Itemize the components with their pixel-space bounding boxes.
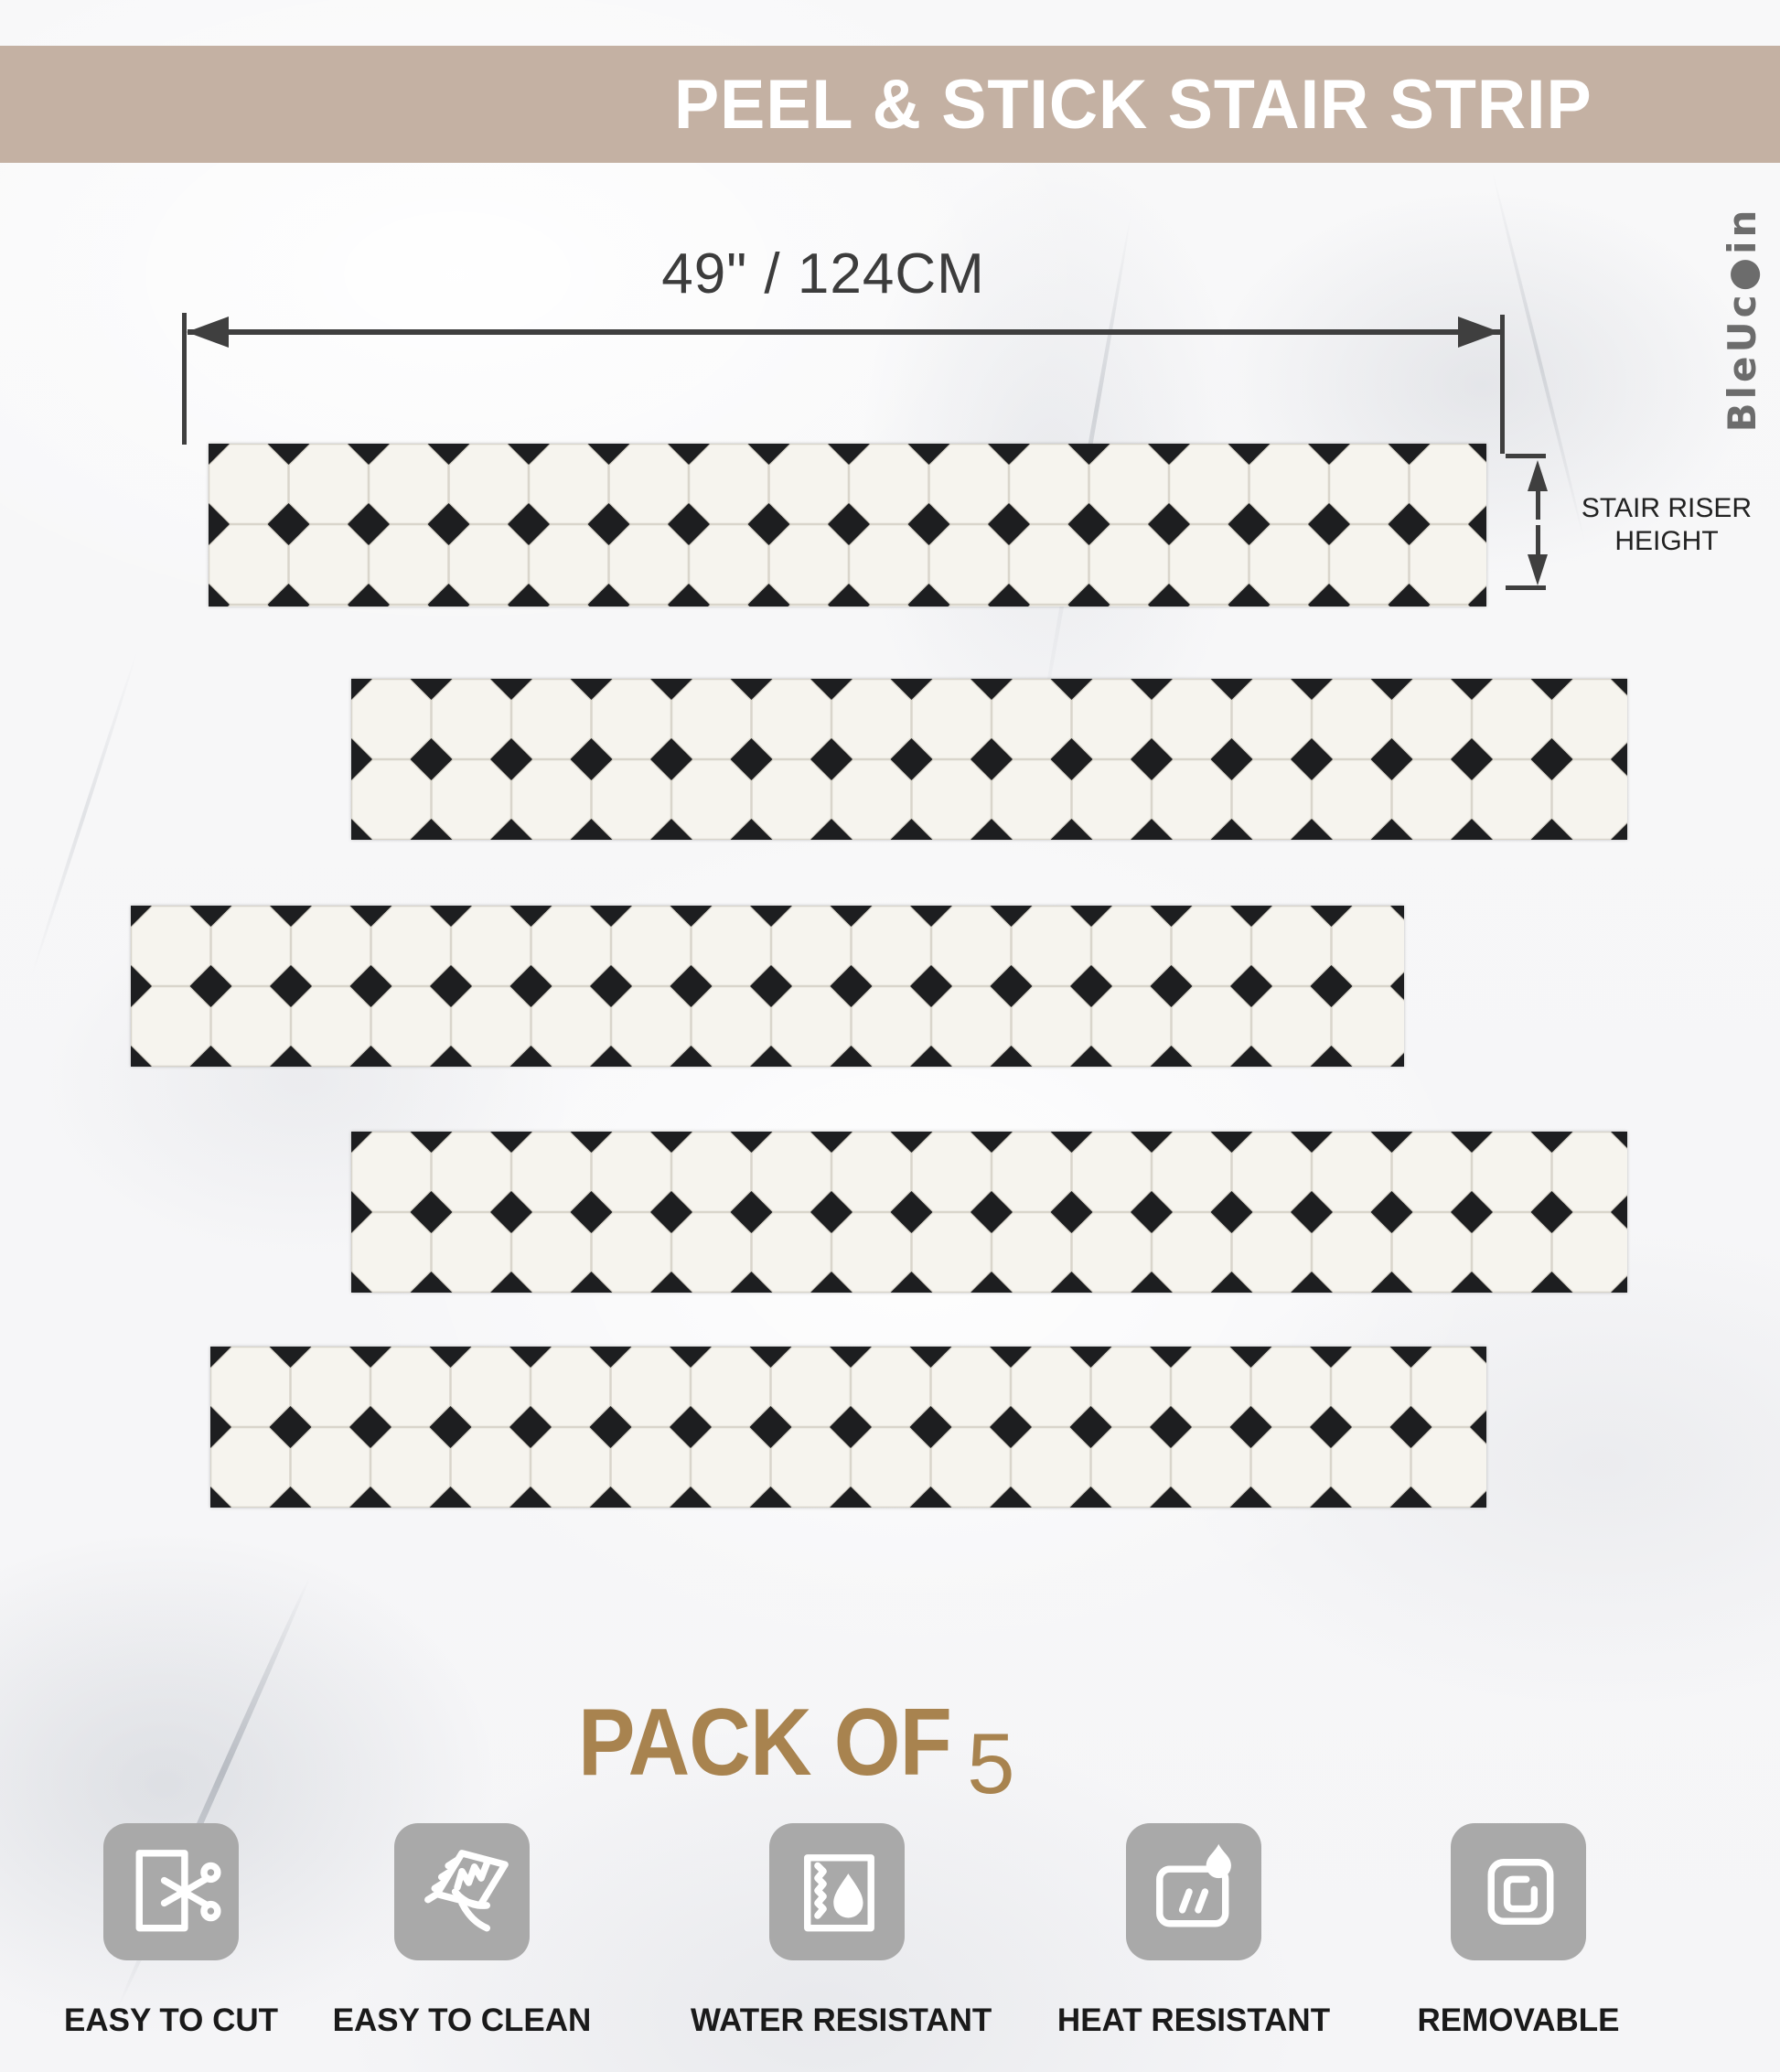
arrowhead-left-icon: [187, 317, 229, 348]
feature-label: REMOVABLE: [1372, 2002, 1665, 2039]
hand-wipe-icon: [394, 1823, 530, 1960]
tile-strip-5: [210, 1347, 1486, 1508]
title-banner: PEEL & STICK STAIR STRIP: [0, 46, 1780, 163]
width-dimension-label: 49" / 124CM: [549, 242, 1098, 306]
dimension-tick-right: [1500, 315, 1505, 454]
tile-strip-1: [209, 444, 1486, 607]
feature-water-resistant: WATER RESISTANT: [691, 1823, 983, 2039]
tile-strip-2: [351, 679, 1627, 840]
dimension-arrow-shaft: [188, 329, 1502, 335]
feature-removable: REMOVABLE: [1372, 1823, 1665, 2039]
tile-strip-4: [351, 1132, 1627, 1293]
pack-number: 5: [967, 1714, 1014, 1813]
feature-heat-resistant: HEAT RESISTANT: [1047, 1823, 1340, 2039]
peel-corner-icon: [1451, 1823, 1586, 1960]
feature-label: HEAT RESISTANT: [1047, 2002, 1340, 2039]
page-title: PEEL & STICK STAIR STRIP: [674, 65, 1592, 145]
riser-label-line2: HEIGHT: [1553, 525, 1780, 558]
riser-height-label: STAIR RISER HEIGHT: [1553, 492, 1780, 558]
feature-label: EASY TO CLEAN: [316, 2002, 608, 2039]
arrowhead-up-icon: [1528, 460, 1548, 491]
arrowhead-right-icon: [1458, 317, 1500, 348]
feature-easy-to-clean: EASY TO CLEAN: [316, 1823, 608, 2039]
feature-easy-to-cut: EASY TO CUT: [25, 1823, 317, 2039]
brand-logo: BleUc●in: [1719, 182, 1764, 456]
pack-label: PACK OF: [578, 1689, 951, 1798]
riser-label-line1: STAIR RISER: [1553, 492, 1780, 525]
scissors-cut-icon: [103, 1823, 239, 1960]
arrowhead-down-icon: [1528, 554, 1548, 585]
feature-label: WATER RESISTANT: [691, 2002, 983, 2039]
feature-label: EASY TO CUT: [25, 2002, 317, 2039]
pack-count: PACK OF 5: [578, 1689, 1015, 1798]
riser-tick-bottom: [1506, 585, 1546, 590]
water-drop-icon: [769, 1823, 905, 1960]
riser-tick-top: [1506, 454, 1546, 458]
flame-icon: [1126, 1823, 1261, 1960]
tile-strip-3: [131, 906, 1404, 1067]
product-infographic: PEEL & STICK STAIR STRIP BleUc●in 49" / …: [0, 0, 1780, 2072]
